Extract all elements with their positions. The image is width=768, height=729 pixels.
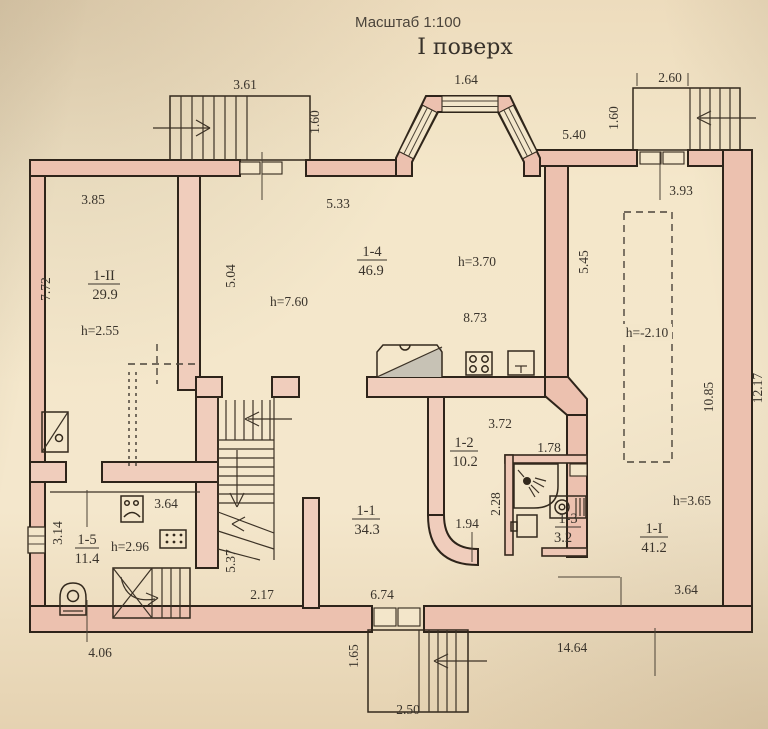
bath-duct xyxy=(570,464,587,476)
room-14-id: 1-4 xyxy=(362,244,382,260)
room-1II-area: 29.9 xyxy=(92,287,117,303)
room-1I-area: 41.2 xyxy=(641,540,666,556)
dim-stair-tr-depth: 1.60 xyxy=(606,106,621,130)
dim-room-15-depth: 3.14 xyxy=(50,521,65,545)
dim-room-12-lower: 1.94 xyxy=(455,516,479,531)
entrance-tl-jamb xyxy=(240,162,260,174)
dim-room-14-width: 5.33 xyxy=(326,196,350,211)
dim-room-1I-bottom: 3.64 xyxy=(674,582,698,597)
wall-kitchen-b xyxy=(272,377,299,397)
room-15-area: 11.4 xyxy=(75,551,101,567)
kitchen-sink-icon xyxy=(508,351,534,375)
stair-top-right xyxy=(633,73,756,150)
stove-icon xyxy=(466,352,492,375)
dim-right-wall-outer: 12.17 xyxy=(750,373,765,404)
dim-room-15-width: 3.64 xyxy=(154,496,178,511)
room-labels: 1-II 29.9 h=2.55 1-4 46.9 h=7.60 h=3.70 … xyxy=(75,244,712,567)
room-14-height: h=7.60 xyxy=(270,294,308,309)
room-1II-height: h=2.55 xyxy=(81,323,119,338)
wall-11-12 xyxy=(428,397,444,515)
wall-left xyxy=(30,160,45,632)
wall-center-right-jog xyxy=(545,377,587,415)
room-12-id: 1-2 xyxy=(454,435,473,451)
fireplace-icon xyxy=(377,345,442,377)
titles: Масштаб 1:100 I поверх xyxy=(355,14,513,60)
dim-stair-tl-width: 3.61 xyxy=(233,77,257,92)
wall-bottom-b xyxy=(424,606,752,632)
bay-window-pane-right xyxy=(499,105,537,159)
wall-kitchen-a xyxy=(196,377,222,397)
wall-bath-top xyxy=(505,455,587,463)
room-11-area: 34.3 xyxy=(354,522,379,538)
dim-bottom-right-span: 14.64 xyxy=(557,640,588,655)
direction-arrow xyxy=(434,654,487,668)
wall-right xyxy=(723,150,752,630)
wall-stub-bottom xyxy=(303,498,319,608)
wall-bottom-a xyxy=(30,606,372,632)
room-1I-id: 1-I xyxy=(646,521,663,537)
wall-top-left-b xyxy=(306,160,398,176)
electric-panel-icon xyxy=(160,530,186,548)
entrance-bottom-jamb xyxy=(374,608,396,626)
dim-bath-width: 1.78 xyxy=(537,440,561,455)
room-14-area: 46.9 xyxy=(358,263,383,279)
room-13-id: 1-3 xyxy=(558,511,577,527)
wall-stairhall-left xyxy=(196,390,218,462)
room-15-id: 1-5 xyxy=(77,532,96,548)
room-1II-id: 1-II xyxy=(93,268,115,284)
dim-stair-bottom-depth: 1.65 xyxy=(346,644,361,668)
wall-top-right-a xyxy=(537,150,637,166)
window-left-wall xyxy=(28,527,45,553)
scale-label: Масштаб 1:100 xyxy=(355,14,461,31)
room-12-area: 10.2 xyxy=(452,454,477,470)
entrance-bottom-jamb xyxy=(398,608,420,626)
floor-plan-svg: Масштаб 1:100 I поверх 1-II 29.9 h=2.55 … xyxy=(0,0,768,729)
dim-top-right-wall: 5.40 xyxy=(562,127,586,142)
stair-top-left xyxy=(153,96,310,160)
room-1I-height: h=3.65 xyxy=(673,493,711,508)
dim-bath-depth: 2.28 xyxy=(488,492,503,516)
entrance-tr-jamb xyxy=(640,152,661,164)
dim-stair-bottom-width: 2.50 xyxy=(396,702,420,717)
dim-stair-hall-depth: 5.37 xyxy=(223,549,238,573)
room-15-height: h=2.96 xyxy=(111,539,149,554)
shower-icon xyxy=(514,464,558,508)
stair-bottom xyxy=(368,630,487,712)
stair-steps xyxy=(690,88,730,150)
wall-center-right xyxy=(545,166,568,377)
wall-kitchen-c xyxy=(367,377,547,397)
room-13-area: 3.2 xyxy=(554,530,572,546)
dim-bottom-span-2: 6.74 xyxy=(370,587,394,602)
entrance-tl-jamb xyxy=(262,162,282,174)
dim-right-wall-upper: 5.45 xyxy=(576,250,591,274)
lower-flight-steps xyxy=(218,449,274,503)
dim-room-right-top: 3.93 xyxy=(669,183,693,198)
wall-1II-14 xyxy=(178,176,200,390)
wall-bath-bottom xyxy=(542,548,587,556)
direction-arrow xyxy=(697,111,756,125)
kitchen-height: h=3.70 xyxy=(458,254,496,269)
wall-top-left-a xyxy=(30,160,240,176)
dim-room-14-depth: 5.04 xyxy=(223,264,238,288)
up-arrow xyxy=(245,412,292,426)
shaft-height: h=-2.10 xyxy=(626,325,669,340)
stair-interior xyxy=(218,397,292,560)
kitchen-width: 8.73 xyxy=(463,310,487,325)
dim-right-wall-lower: 10.85 xyxy=(701,382,716,413)
dim-stair-tr-width: 2.60 xyxy=(658,70,682,85)
room-11-id: 1-1 xyxy=(356,503,375,519)
dim-bay-width: 1.64 xyxy=(454,72,478,87)
wall-1II-15-b xyxy=(102,462,218,482)
dim-stair-tl-depth: 1.60 xyxy=(307,110,322,134)
wall-15-right xyxy=(196,482,218,568)
floor-title: I поверх xyxy=(417,35,513,60)
wall-bath-left xyxy=(505,455,513,555)
dim-bottom-span-1: 2.17 xyxy=(250,587,274,602)
toilet-icon xyxy=(511,515,537,537)
bay-window-pane-left xyxy=(399,105,437,159)
dim-room-12-width: 3.72 xyxy=(488,416,512,431)
washing-machine-icon xyxy=(121,496,143,522)
bay-window xyxy=(396,96,540,176)
dim-bottom-left-span: 4.06 xyxy=(88,645,112,660)
bay-window-pane-top xyxy=(442,96,498,112)
stair-steps xyxy=(419,630,456,712)
dim-room-1II-depth: 7.72 xyxy=(38,277,53,301)
dim-room-1II-width: 3.85 xyxy=(81,192,105,207)
wall-1II-15-a xyxy=(30,462,66,482)
entrance-tr-jamb xyxy=(663,152,684,164)
floor-plan-page: Масштаб 1:100 I поверх 1-II 29.9 h=2.55 … xyxy=(0,0,768,729)
